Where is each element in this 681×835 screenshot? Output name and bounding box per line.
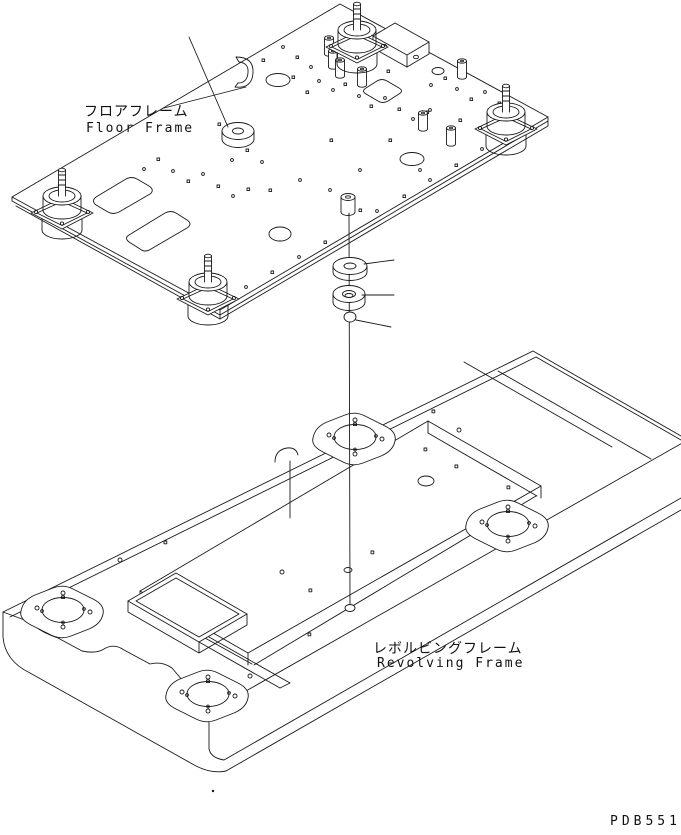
mount-boss: [313, 413, 396, 465]
pin-part: [344, 312, 391, 327]
revolving-frame-drawing: [3, 351, 681, 792]
spacer-cylinder: [458, 59, 467, 79]
floor-frame-drawing: [12, 2, 548, 325]
revolving-frame-label-ja: レボルビングフレーム: [373, 638, 523, 658]
mount-boss: [166, 670, 249, 722]
parts-diagram-page: フロアフレーム Floor Frame レボルビングフレーム Revolving…: [0, 0, 681, 835]
plain-washer-part: [333, 258, 394, 281]
deck-mount-hole: [345, 605, 355, 612]
floor-frame-label-ja: フロアフレーム: [84, 101, 189, 121]
mount-boss: [466, 500, 549, 552]
mount-boss: [21, 586, 104, 638]
spacer-cylinder: [419, 111, 428, 131]
revolving-frame-label-en: Revolving Frame: [377, 656, 524, 671]
spacer-cylinder: [358, 67, 367, 87]
leader-line-pin: [356, 320, 391, 327]
assembly-axis-and-parts: [333, 194, 394, 612]
thick-washer-part: [333, 286, 394, 311]
drawing-code: PDB5517: [610, 814, 681, 829]
spacer-cylinder: [447, 126, 456, 146]
floor-frame-label-en: Floor Frame: [86, 121, 194, 136]
leader-line-washer: [364, 260, 394, 264]
